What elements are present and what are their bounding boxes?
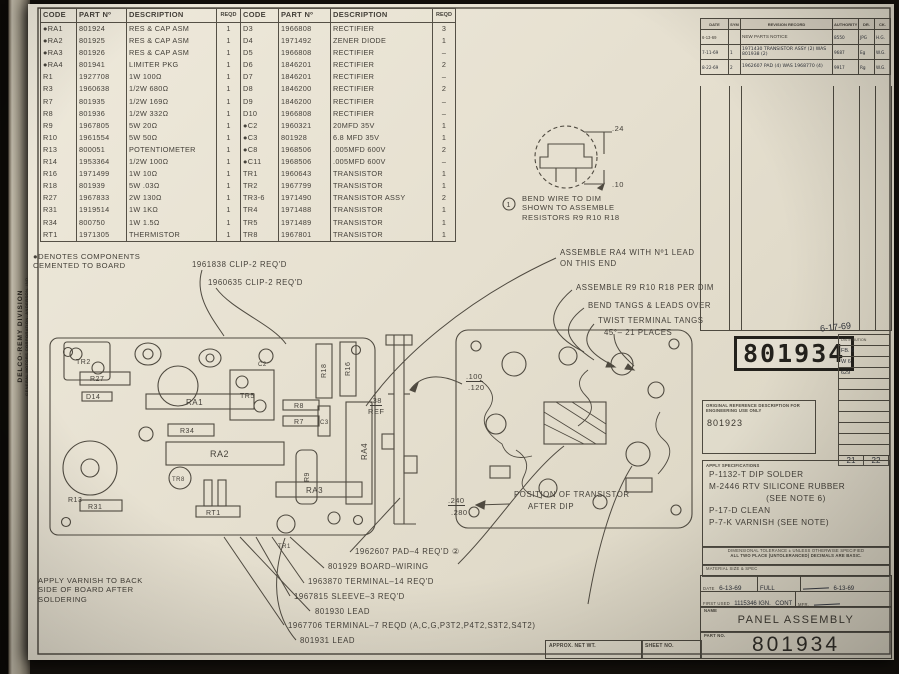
svg-text:RT1: RT1 — [206, 510, 221, 517]
callout-lead1: 801930 LEAD — [315, 607, 370, 616]
callout-terminal7: 1967706 TERMINAL–7 REQD (A,C,G,P3T2,P4T2… — [288, 621, 536, 630]
svg-text:RA4: RA4 — [360, 443, 369, 460]
approx-wt-box: APPROX. NET WT. — [545, 640, 643, 659]
table-row: R3119195141W 1KΩ1 — [41, 204, 241, 216]
table-row: R319606381/2W 680Ω1 — [41, 83, 241, 95]
callout-position-2: AFTER DIP — [528, 502, 574, 511]
callout-assemble-ra4: ASSEMBLE RA4 WITH Nº1 LEAD — [560, 248, 695, 257]
table-row: R13800051POTENTIOMETER1 — [41, 144, 241, 156]
part-number: 801934 — [701, 632, 891, 657]
bend-detail-caption: BEND WIRE TO DIM SHOWN TO ASSEMBLE RESIS… — [522, 194, 620, 222]
original-ref-value: 801923 — [703, 416, 815, 430]
table-row: D101966808RECTIFIER– — [241, 108, 456, 120]
svg-text:C2: C2 — [258, 362, 267, 368]
apply-specs-box: APPLY SPECIFICATIONS P-1132-T DIP SOLDER… — [702, 460, 890, 548]
table-row: R1019615545W 50Ω1 — [41, 132, 241, 144]
drawing-sheet: TR2 R27 D14 RA1 TR5 R8 R7 R18 R16 C3 RA4… — [28, 4, 894, 660]
table-row: ●RA2801925RES & CAP ASM1 — [41, 35, 241, 47]
svg-text:C3: C3 — [320, 420, 329, 426]
revision-table: DATE SYM REVISION RECORD AUTHORITY DR. C… — [700, 18, 891, 75]
table-row: D41971492ZENER DIODE1 — [241, 35, 456, 47]
dim-gap-top: .100 — [466, 372, 483, 382]
table-row: ●C2196032120MFD 35V1 — [241, 120, 456, 132]
svg-text:TR8: TR8 — [172, 477, 185, 483]
table-row: ●RA4801941LIMITER PKG1 — [41, 59, 241, 71]
table-row: D31966808RECTIFIER3 — [241, 23, 456, 36]
footnote-marker-circle: 1 — [503, 198, 515, 210]
book-spine: DELCO-REMY DIVISION GENERAL MOTORS CORPO… — [0, 0, 30, 674]
signature-scribble — [803, 587, 829, 590]
table-row: D91846200RECTIFIER– — [241, 96, 456, 108]
revision-row: 7-11-6911971430 TRANSISTOR ASSY (2) WAS … — [701, 45, 891, 60]
table-header-row: CODE PART Nº DESCRIPTION REQD — [241, 9, 456, 23]
table-row: R2719678332W 130Ω1 — [41, 192, 241, 204]
svg-text:R7: R7 — [294, 419, 304, 426]
svg-text:TR1: TR1 — [278, 544, 291, 550]
dim-24: .24 — [612, 124, 624, 133]
table-row: TR41971488TRANSISTOR1 — [241, 204, 456, 216]
callout-sleeve: 1967815 SLEEVE–3 REQ'D — [294, 592, 405, 601]
table-row: ●C81968506.005MFD 600V2 — [241, 144, 456, 156]
callout-clip2: 1960635 CLIP-2 REQ'D — [208, 278, 303, 287]
table-row: R348007501W 1.5Ω1 — [41, 217, 241, 229]
callout-assemble-r: ASSEMBLE R9 R10 R18 PER DIM — [576, 283, 714, 292]
sheet-title: PANEL ASSEMBLY — [701, 614, 891, 626]
svg-text:D14: D14 — [86, 394, 100, 401]
dim-ref: .38 — [370, 396, 382, 406]
revision-grid-empty — [700, 86, 892, 331]
original-ref-box: ORIGINAL REFERENCE DESCRIPTION FOR ENGIN… — [702, 400, 816, 454]
svg-text:R18: R18 — [321, 364, 328, 378]
table-row: R188019395W .03Ω1 — [41, 180, 241, 192]
dim-gap-bottom: .120 — [468, 383, 485, 392]
table-row: ●RA1801924RES & CAP ASM1 — [41, 23, 241, 36]
varnish-note: APPLY VARNISH TO BACK SIDE OF BOARD AFTE… — [38, 576, 143, 604]
svg-text:RA3: RA3 — [306, 486, 323, 495]
svg-text:R34: R34 — [180, 428, 194, 435]
callout-lead2: 801931 LEAD — [300, 636, 355, 645]
bend-wire-detail — [535, 126, 612, 190]
mfr-cell: MFR. — [796, 592, 891, 607]
table-row: D61846201RECTIFIER2 — [241, 59, 456, 71]
revision-row: 8-22-6921962607 PAD (4) WAS 1968770 (4)9… — [701, 60, 891, 75]
table-row: TR21967799TRANSISTOR1 — [241, 180, 456, 192]
table-row: D81846200RECTIFIER2 — [241, 83, 456, 95]
division-imprint: DELCO-REMY DIVISION — [17, 251, 24, 421]
spec-line: M-2446 RTV SILICONE RUBBER — [709, 481, 883, 493]
dim-dip-top: .240 — [448, 496, 465, 506]
callout-bend-tangs: BEND TANGS & LEADS OVER — [588, 301, 711, 310]
revision-row: 6-13-69NEW PARTS NOTICE8550JPGH.G. — [701, 30, 891, 45]
table-header-row: CODE PART Nº DESCRIPTION REQD — [41, 9, 241, 23]
release-number-stamp: 801934 — [734, 336, 854, 371]
table-row: TR11960643TRANSISTOR1 — [241, 168, 456, 180]
callout-position: POSITION OF TRANSISTOR — [514, 490, 630, 499]
callout-pad: 1962607 PAD–4 REQ'D ② — [355, 547, 460, 556]
table-row: TR3-61971490TRANSISTOR ASSY2 — [241, 192, 456, 204]
callout-terminal14: 1963870 TERMINAL–14 REQ'D — [308, 577, 434, 586]
spec-line: P-7-K VARNISH (SEE NOTE) — [709, 517, 883, 529]
distribution-table: DISTRIBUTION FB. 6 W 6 629 — [838, 334, 890, 456]
parts-table-right: CODE PART Nº DESCRIPTION REQD D31966808R… — [240, 8, 456, 242]
svg-text:R27: R27 — [90, 376, 104, 383]
part-number-box: PART NO. 801934 — [700, 631, 892, 659]
first-used-cell: FIRST USED 1115346 IGN. CONT — [701, 592, 796, 607]
date-cell: DATE 6-13-69 — [701, 576, 758, 591]
table-row: TR81967801TRANSISTOR1 — [241, 229, 456, 242]
scale-cell: FULL — [758, 576, 801, 591]
svg-text:RA1: RA1 — [186, 398, 203, 407]
dim-ref-label: REF — [368, 407, 385, 416]
board-side-view — [382, 335, 417, 524]
callout-board-wiring: 801929 BOARD–WIRING — [328, 562, 429, 571]
table-row: D51966808RECTIFIER– — [241, 47, 456, 59]
svg-text:R13: R13 — [68, 497, 82, 504]
dim-10: .10 — [612, 180, 624, 189]
callout-twist: TWIST TERMINAL TANGS — [598, 316, 704, 325]
table-row: ●RA3801926RES & CAP ASM1 — [41, 47, 241, 59]
callout-clip1: 1961838 CLIP-2 REQ'D — [192, 260, 287, 269]
table-row: R78019351/2W 169Ω1 — [41, 96, 241, 108]
table-row: R919678055W 20Ω1 — [41, 120, 241, 132]
callout-twist-2: 45°– 21 PLACES — [604, 328, 672, 337]
approvals-block: DATE 6-13-69 FULL 6-13-69 FIRST USED 111… — [700, 575, 892, 608]
callout-assemble-ra4-2: ON THIS END — [560, 259, 617, 268]
svg-text:R8: R8 — [294, 403, 304, 410]
cemented-note: ●DENOTES COMPONENTS CEMENTED TO BOARD — [33, 252, 140, 271]
photographed-engineering-drawing: { "drawing": { "division": "DELCO-REMY D… — [0, 0, 899, 674]
spec-line: P-17-D CLEAN — [709, 505, 883, 517]
table-row: R1419533641/2W 100Ω1 — [41, 156, 241, 168]
parts-table-left: CODE PART Nº DESCRIPTION REQD ●RA1801924… — [40, 8, 241, 242]
spec-line: P-1132-T DIP SOLDER — [709, 469, 883, 481]
svg-text:1: 1 — [507, 202, 511, 209]
sheet-no-box: SHEET NO. — [641, 640, 702, 659]
table-row: TR51971489TRANSISTOR1 — [241, 217, 456, 229]
table-row: R88019361/2W 332Ω1 — [41, 108, 241, 120]
table-row: RT11971305THERMISTOR1 — [41, 229, 241, 242]
svg-text:R16: R16 — [345, 362, 352, 376]
tolerance-box: DIMENSIONAL TOLERANCE ± UNLESS OTHERWISE… — [702, 546, 890, 566]
table-row: D71846201RECTIFIER– — [241, 71, 456, 83]
approved-cell: 6-13-69 — [801, 576, 891, 591]
svg-text:TR5: TR5 — [240, 393, 255, 400]
svg-text:R31: R31 — [88, 504, 102, 511]
name-box: NAME PANEL ASSEMBLY — [700, 606, 892, 633]
table-row: R1619714991W 10Ω1 — [41, 168, 241, 180]
table-row: ●C111968506.005MFD 600V– — [241, 156, 456, 168]
svg-text:R9: R9 — [304, 472, 311, 482]
spec-line: (SEE NOTE 6) — [709, 493, 883, 505]
svg-text:TR2: TR2 — [76, 359, 91, 366]
table-row: ●C38019286.8 MFD 35V1 — [241, 132, 456, 144]
table-row: R119277081W 100Ω1 — [41, 71, 241, 83]
dim-dip-bottom: .280 — [451, 508, 468, 517]
svg-text:RA2: RA2 — [210, 449, 229, 459]
